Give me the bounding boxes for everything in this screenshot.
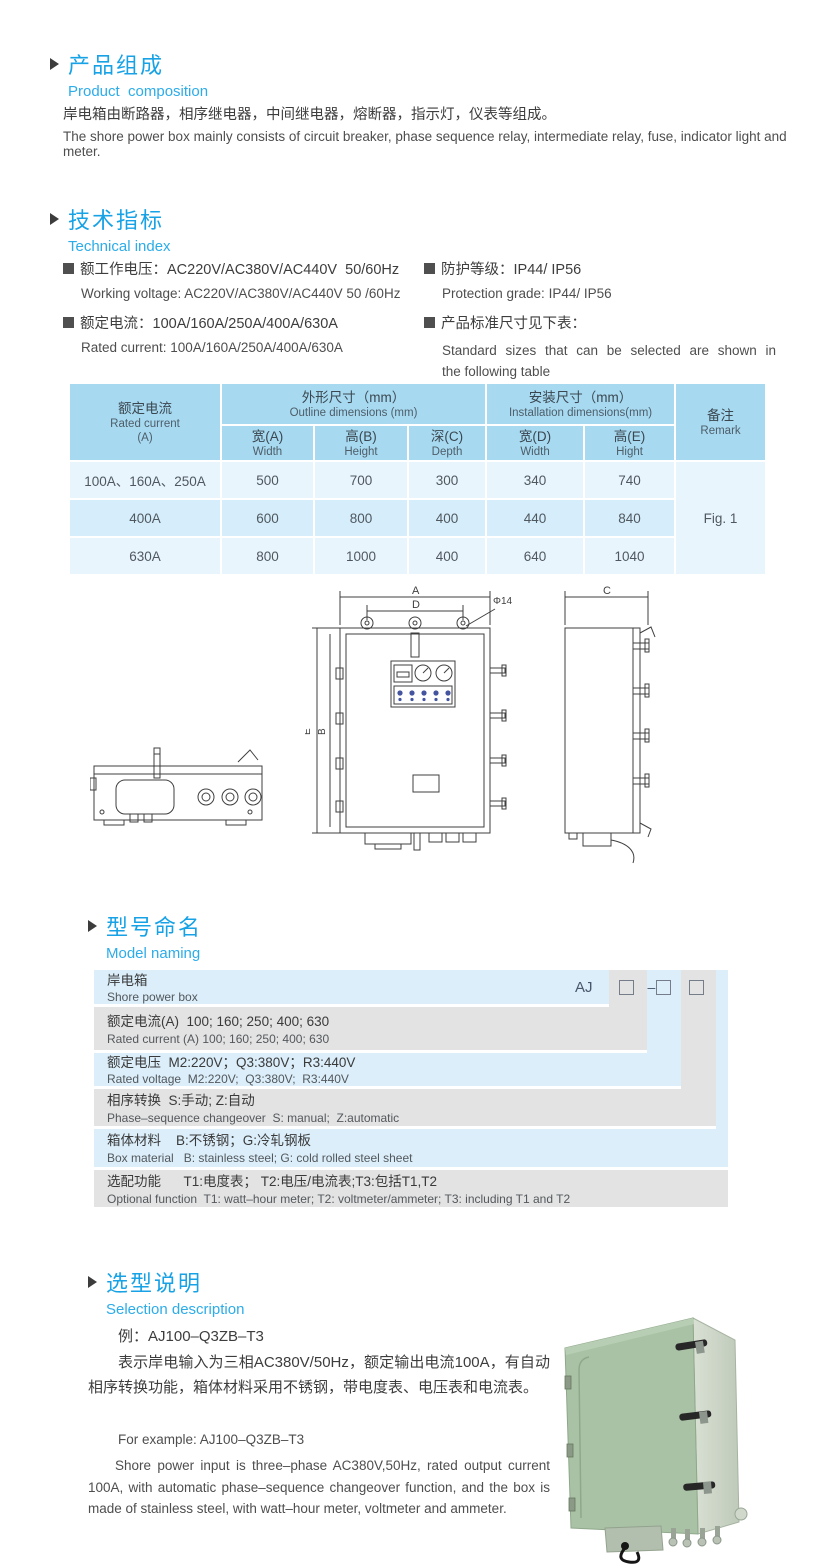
selection-body-zh: 表示岸电输入为三相AC380V/50Hz，额定输出电流100A，有自动相序转换功… bbox=[88, 1350, 550, 1400]
cell-height-e: 1040 bbox=[584, 537, 675, 575]
selection-body-en: Shore power input is three–phase AC380V,… bbox=[88, 1455, 550, 1520]
spec-zh-text: 产品标准尺寸见下表： bbox=[441, 312, 586, 333]
cell-current: 630A bbox=[69, 537, 221, 575]
side-view-drawing: C bbox=[545, 583, 675, 868]
side-view-labels: C bbox=[603, 585, 611, 597]
cell-current: 400A bbox=[69, 499, 221, 537]
dim-d-label: D bbox=[412, 599, 420, 611]
section-arrow-icon bbox=[50, 58, 59, 70]
section-title-zh: 选型说明 bbox=[106, 1266, 202, 1298]
cell-height-b: 700 bbox=[314, 461, 408, 499]
spec-working-voltage: 额工作电压：AC220V/AC380V/AC440V 50/60Hz Worki… bbox=[63, 258, 418, 301]
composition-text-zh: 岸电箱由断路器，相序继电器，中间继电器，熔断器，指示灯，仪表等组成。 bbox=[63, 103, 783, 124]
cell-current: 100A、160A、250A bbox=[69, 461, 221, 499]
spec-zh-text: 防护等级：IP44/ IP56 bbox=[441, 258, 581, 279]
dimensions-table: 额定电流 Rated current (A) 外形尺寸（mm） Outline … bbox=[68, 382, 767, 576]
dim-e-label: E bbox=[305, 728, 313, 735]
cabinet-body bbox=[565, 1318, 739, 1534]
cell-depth-c: 400 bbox=[408, 537, 486, 575]
table-row: 630A 800 1000 400 640 1040 bbox=[69, 537, 766, 575]
bullet-square-icon bbox=[424, 263, 435, 274]
model-code-row: AJ – bbox=[575, 970, 704, 1004]
cell-depth-c: 400 bbox=[408, 499, 486, 537]
bottom-view-lines bbox=[90, 748, 262, 825]
spec-en-text: Standard sizes that can be selected are … bbox=[442, 340, 776, 382]
spec-en-text: Rated current: 100A/160A/250A/400A/630A bbox=[81, 340, 418, 355]
header-remark: 备注 Remark bbox=[675, 383, 766, 461]
hole-diameter-label: Φ14 bbox=[493, 596, 513, 607]
header-depth-c: 深(C)Depth bbox=[408, 425, 486, 461]
model-code-box-2 bbox=[656, 980, 671, 995]
cell-height-e: 840 bbox=[584, 499, 675, 537]
naming-row-optional-function: 选配功能 T1:电度表； T2:电压/电流表;T3:包括T1,T2 Option… bbox=[94, 1170, 728, 1207]
header-width-d: 宽(D)Width bbox=[486, 425, 584, 461]
bottom-view-drawing bbox=[90, 738, 270, 838]
cell-width-d: 640 bbox=[486, 537, 584, 575]
bullet-square-icon bbox=[63, 317, 74, 328]
section-composition-heading: 产品组成 Product composition bbox=[50, 48, 208, 100]
section-title-zh: 型号命名 bbox=[106, 910, 202, 942]
product-photo bbox=[543, 1306, 805, 1564]
section-title-zh: 产品组成 bbox=[68, 48, 164, 80]
latch-icons bbox=[490, 665, 506, 809]
naming-row-rated-voltage: 额定电压 M2:220V；Q3:380V；R3:440V Rated volta… bbox=[94, 1053, 681, 1086]
naming-row-product: 岸电箱 Shore power box bbox=[94, 970, 609, 1004]
cell-remark: Fig. 1 bbox=[675, 461, 766, 575]
section-arrow-icon bbox=[50, 213, 59, 225]
dim-b-label: B bbox=[317, 728, 328, 735]
datasheet-page: 产品组成 Product composition 岸电箱由断路器，相序继电器，中… bbox=[0, 0, 830, 1568]
header-installation-dimensions: 安装尺寸（mm） Installation dimensions(mm) bbox=[486, 383, 675, 425]
front-view-drawing: A D Φ14 E B bbox=[305, 583, 520, 868]
selection-example-zh: 例：AJ100–Q3ZB–T3 bbox=[118, 1325, 264, 1346]
cell-depth-c: 300 bbox=[408, 461, 486, 499]
cell-height-b: 1000 bbox=[314, 537, 408, 575]
cell-width-a: 600 bbox=[221, 499, 314, 537]
spec-standard-sizes: 产品标准尺寸见下表： Standard sizes that can be se… bbox=[424, 312, 776, 382]
bullet-square-icon bbox=[424, 317, 435, 328]
section-title-en: Technical index bbox=[68, 238, 171, 255]
section-title-en: Model naming bbox=[106, 945, 202, 962]
model-code-box-1 bbox=[619, 980, 634, 995]
section-title-en: Product composition bbox=[68, 83, 208, 100]
section-model-naming-heading: 型号命名 Model naming bbox=[88, 910, 202, 962]
cell-height-b: 800 bbox=[314, 499, 408, 537]
bullet-square-icon bbox=[63, 263, 74, 274]
composition-text-en: The shore power box mainly consists of c… bbox=[63, 129, 803, 159]
cell-width-d: 340 bbox=[486, 461, 584, 499]
header-height-e: 高(E)Hight bbox=[584, 425, 675, 461]
model-code-prefix: AJ bbox=[575, 979, 593, 996]
header-outline-dimensions: 外形尺寸（mm） Outline dimensions (mm) bbox=[221, 383, 486, 425]
section-technical-heading: 技术指标 Technical index bbox=[50, 203, 171, 255]
cell-width-a: 500 bbox=[221, 461, 314, 499]
model-code-box-3 bbox=[689, 980, 704, 995]
side-view-lines bbox=[565, 591, 655, 863]
spec-zh-text: 额工作电压：AC220V/AC380V/AC440V 50/60Hz bbox=[80, 258, 399, 279]
naming-row-box-material: 箱体材料 B:不锈钢；G:冷轧钢板 Box material B: stainl… bbox=[94, 1129, 728, 1167]
header-width-a: 宽(A)Width bbox=[221, 425, 314, 461]
spec-en-text: Protection grade: IP44/ IP56 bbox=[442, 286, 774, 301]
front-view-lines bbox=[312, 591, 506, 850]
header-rated-current: 额定电流 Rated current (A) bbox=[69, 383, 221, 461]
section-selection-heading: 选型说明 Selection description bbox=[88, 1266, 244, 1318]
model-code-dash: – bbox=[648, 979, 656, 995]
indicator-lights bbox=[397, 690, 450, 701]
section-arrow-icon bbox=[88, 920, 97, 932]
table-row: 100A、160A、250A 500 700 300 340 740 Fig. … bbox=[69, 461, 766, 499]
selection-example-en: For example: AJ100–Q3ZB–T3 bbox=[118, 1432, 304, 1447]
cell-width-d: 440 bbox=[486, 499, 584, 537]
spec-protection-grade: 防护等级：IP44/ IP56 Protection grade: IP44/ … bbox=[424, 258, 774, 301]
table-row: 400A 600 800 400 440 840 bbox=[69, 499, 766, 537]
cell-width-a: 800 bbox=[221, 537, 314, 575]
spec-en-text: Working voltage: AC220V/AC380V/AC440V 50… bbox=[81, 286, 418, 301]
section-title-zh: 技术指标 bbox=[68, 203, 164, 235]
section-title-en: Selection description bbox=[106, 1301, 244, 1318]
naming-row-rated-current: 额定电流(A) 100; 160; 250; 400; 630 Rated cu… bbox=[94, 1007, 647, 1050]
dim-c-label: C bbox=[603, 585, 611, 597]
naming-row-phase-sequence: 相序转换 S:手动; Z:自动 Phase–sequence changeove… bbox=[94, 1089, 716, 1126]
table-header-group-row: 额定电流 Rated current (A) 外形尺寸（mm） Outline … bbox=[69, 383, 766, 425]
spec-rated-current: 额定电流：100A/160A/250A/400A/630A Rated curr… bbox=[63, 312, 418, 355]
cell-height-e: 740 bbox=[584, 461, 675, 499]
dim-a-label: A bbox=[412, 585, 420, 597]
header-height-b: 高(B)Height bbox=[314, 425, 408, 461]
section-arrow-icon bbox=[88, 1276, 97, 1288]
spec-zh-text: 额定电流：100A/160A/250A/400A/630A bbox=[80, 312, 338, 333]
